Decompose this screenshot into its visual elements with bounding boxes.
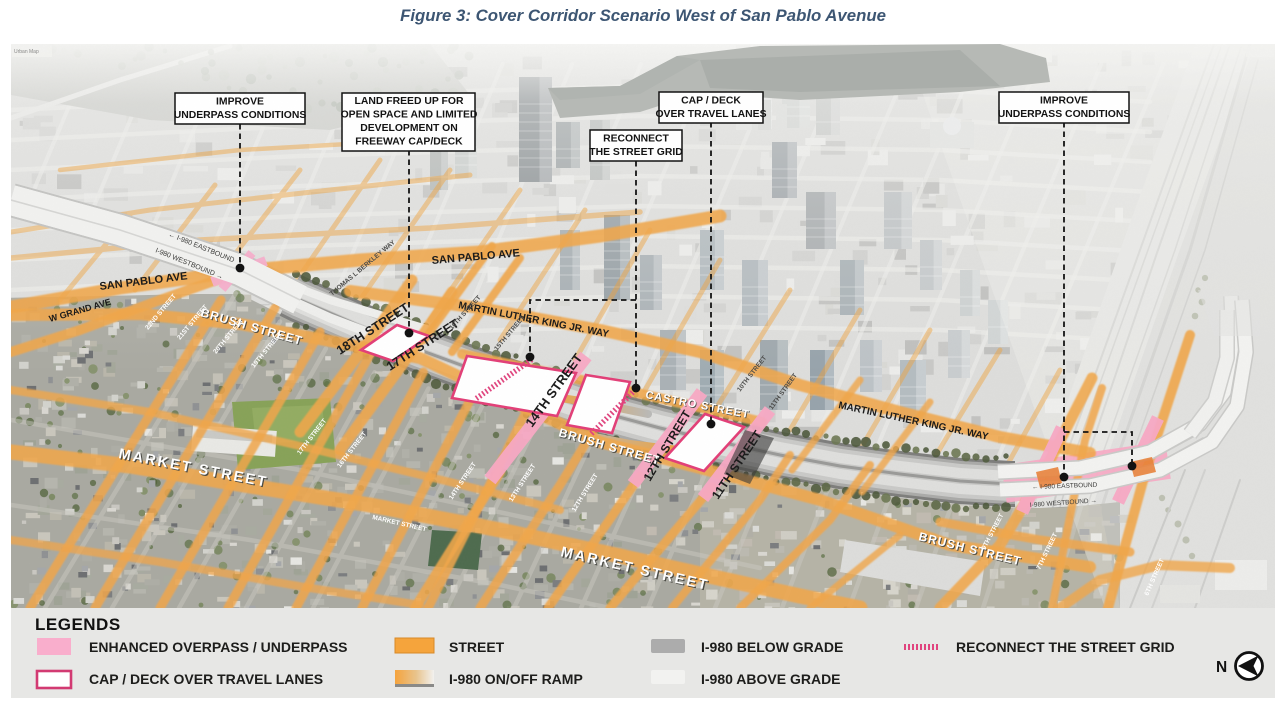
svg-text:CAP / DECK OVER TRAVEL LANES: CAP / DECK OVER TRAVEL LANES <box>89 671 323 687</box>
svg-text:Figure 3: Cover Corridor Scena: Figure 3: Cover Corridor Scenario West o… <box>400 6 886 25</box>
svg-text:I-980 ABOVE GRADE: I-980 ABOVE GRADE <box>701 671 841 687</box>
svg-text:RECONNECT THE STREET GRID: RECONNECT THE STREET GRID <box>956 639 1175 655</box>
svg-text:STREET: STREET <box>449 639 505 655</box>
svg-text:N: N <box>1216 659 1227 676</box>
svg-text:ENHANCED OVERPASS / UNDERPASS: ENHANCED OVERPASS / UNDERPASS <box>89 639 348 655</box>
svg-text:LEGENDS: LEGENDS <box>35 615 121 634</box>
svg-text:I-980 BELOW GRADE: I-980 BELOW GRADE <box>701 639 843 655</box>
svg-text:I-980 ON/OFF RAMP: I-980 ON/OFF RAMP <box>449 671 583 687</box>
